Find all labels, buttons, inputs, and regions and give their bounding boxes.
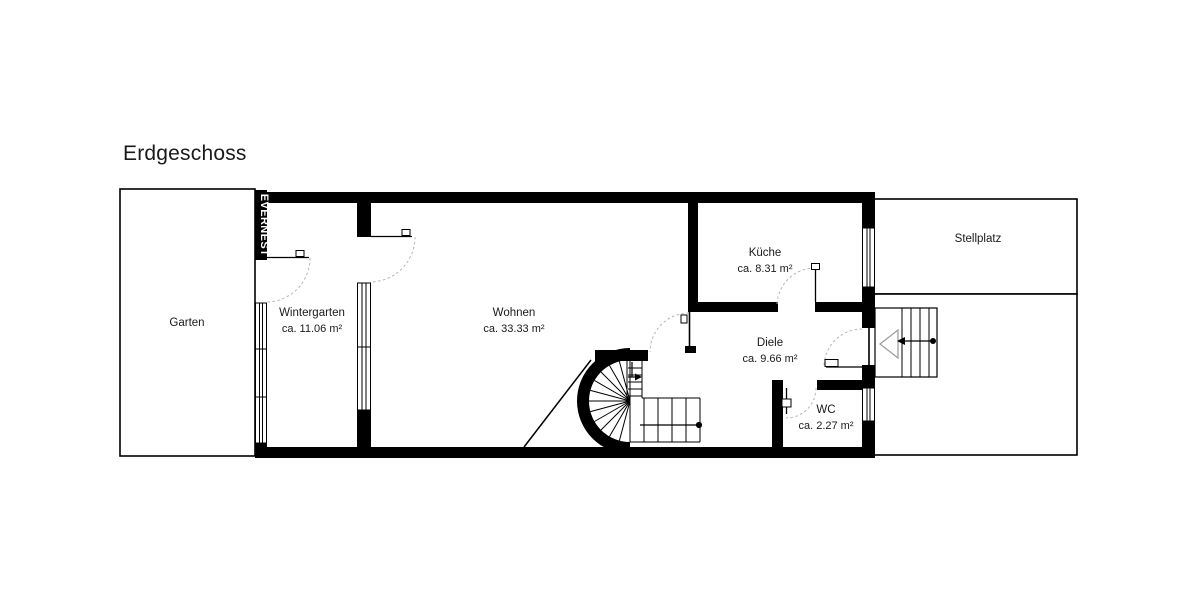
- window-wc: [863, 388, 875, 421]
- floor-plan-page: Erdgeschoss: [0, 0, 1200, 600]
- room-area-diele: ca. 9.66 m²: [742, 353, 797, 365]
- door-wintergarten-wohnen: [370, 230, 415, 283]
- room-label-wohnen: Wohnen: [493, 307, 536, 319]
- wall-right-1: [862, 192, 875, 228]
- room-label-diele: Diele: [757, 337, 783, 349]
- door-wohnen-diele: [650, 312, 690, 352]
- door-wc: [782, 388, 816, 418]
- wall-left-lower: [255, 443, 267, 458]
- wall-top: [255, 192, 875, 203]
- wall-right-3: [862, 365, 875, 388]
- stair-top-flight: [627, 361, 642, 401]
- room-label-wc: WC: [816, 404, 835, 416]
- wall-door-foot: [685, 346, 696, 353]
- wall-right-2: [862, 287, 875, 328]
- walk-start-dot: [930, 338, 936, 344]
- wall-wintergarten-wohnen-lower: [357, 410, 371, 447]
- room-label-garten: Garten: [169, 317, 204, 329]
- room-label-wintergarten: Wintergarten: [279, 307, 345, 319]
- wall-wc-left: [772, 380, 783, 458]
- page-title: Erdgeschoss: [123, 142, 247, 165]
- wall-wohnen-diele: [688, 203, 698, 302]
- room-label-kueche: Küche: [749, 247, 782, 259]
- wall-kueche-diele-right: [815, 302, 862, 312]
- room-area-wohnen: ca. 33.33 m²: [483, 323, 544, 335]
- door-entrance: [824, 329, 862, 367]
- room-area-wc: ca. 2.27 m²: [798, 420, 853, 432]
- window-wintergarten-wohnen: [358, 283, 371, 410]
- walls: [255, 190, 875, 458]
- room-area-wintergarten: ca. 11.06 m²: [282, 323, 343, 335]
- winder-staircase: [524, 348, 702, 454]
- stellplatz-area: [869, 199, 1077, 294]
- door-garten-wintergarten: [267, 251, 310, 303]
- floor-plan: Erdgeschoss: [0, 0, 1200, 600]
- walk-start-dot: [696, 422, 702, 428]
- wall-right-4: [862, 421, 875, 458]
- stair-right-flight: [630, 398, 700, 442]
- exterior-steps-outline: [875, 308, 937, 377]
- room-label-stellplatz: Stellplatz: [955, 233, 1002, 245]
- wall-wintergarten-wohnen-upper: [357, 203, 371, 237]
- exterior-steps: [875, 308, 937, 377]
- window-wintergarten: [256, 303, 267, 443]
- watermark-text: EVERNEST: [258, 194, 270, 257]
- window-kueche: [863, 228, 875, 287]
- wall-diele-wc: [817, 380, 862, 390]
- stair-top-wall: [595, 350, 648, 361]
- room-area-kueche: ca. 8.31 m²: [737, 263, 792, 275]
- wall-kueche-diele-left: [688, 302, 778, 312]
